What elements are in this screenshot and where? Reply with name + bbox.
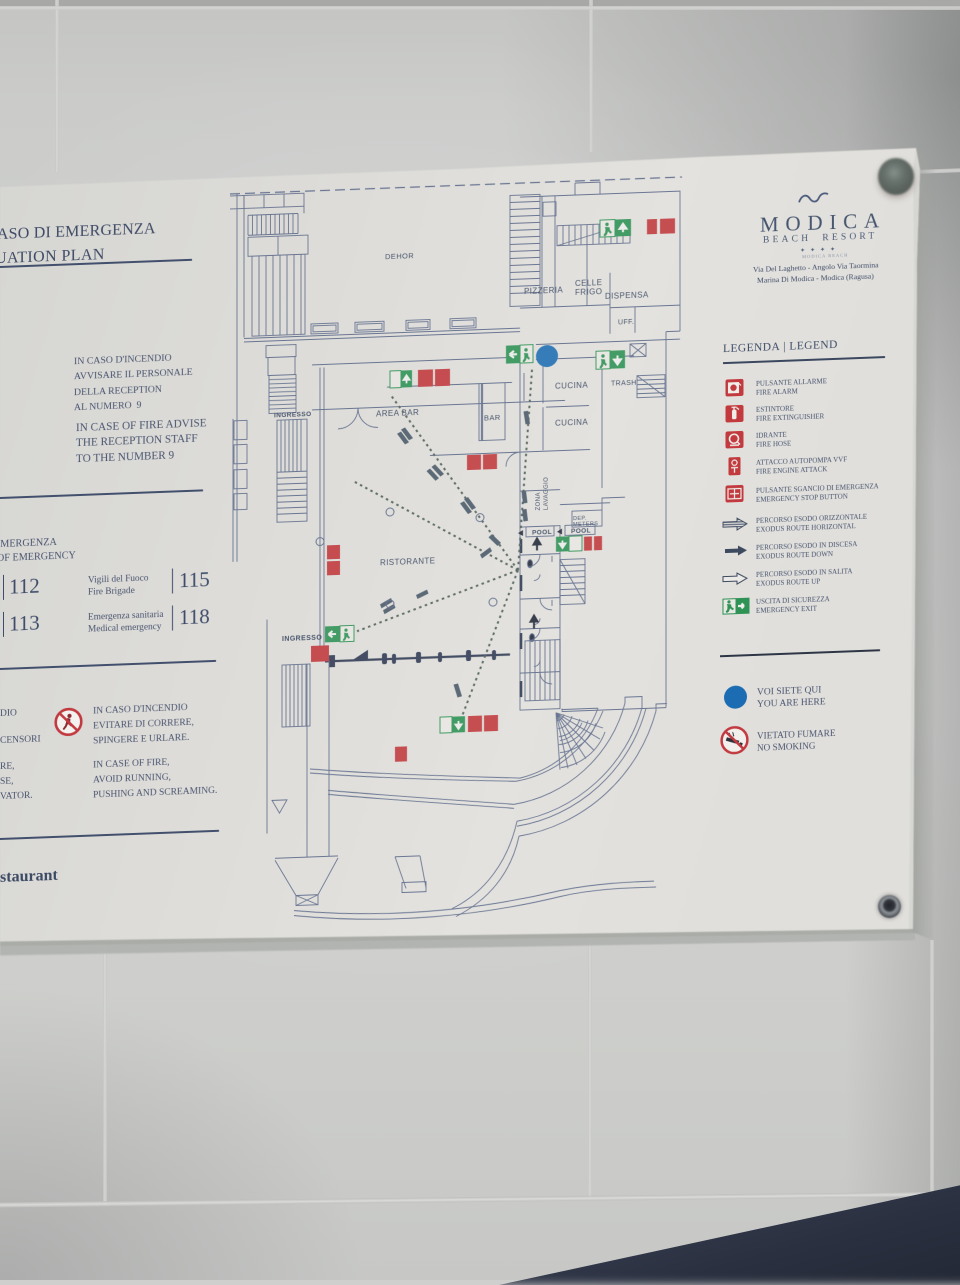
svg-text:PIZZERIA: PIZZERIA <box>524 285 563 295</box>
svg-text:AREA BAR: AREA BAR <box>376 408 419 419</box>
svg-text:INGRESSO: INGRESSO <box>282 635 322 644</box>
svg-text:INGRESSO: INGRESSO <box>274 411 312 419</box>
svg-text:BAR: BAR <box>484 413 501 423</box>
svg-text:POOL: POOL <box>532 529 552 537</box>
svg-text:FRIGO: FRIGO <box>575 287 602 297</box>
svg-text:DISPENSA: DISPENSA <box>605 290 649 301</box>
svg-text:LAVAGGIO: LAVAGGIO <box>544 477 550 511</box>
svg-text:UFF.: UFF. <box>618 319 634 327</box>
svg-text:RISTORANTE: RISTORANTE <box>380 556 435 567</box>
svg-text:CUCINA: CUCINA <box>555 381 588 391</box>
svg-text:CUCINA: CUCINA <box>555 418 588 428</box>
svg-text:DEHOR: DEHOR <box>385 251 414 261</box>
svg-text:POOL: POOL <box>571 527 591 535</box>
svg-text:TRASH: TRASH <box>611 380 637 388</box>
svg-text:ZONA: ZONA <box>536 492 542 510</box>
